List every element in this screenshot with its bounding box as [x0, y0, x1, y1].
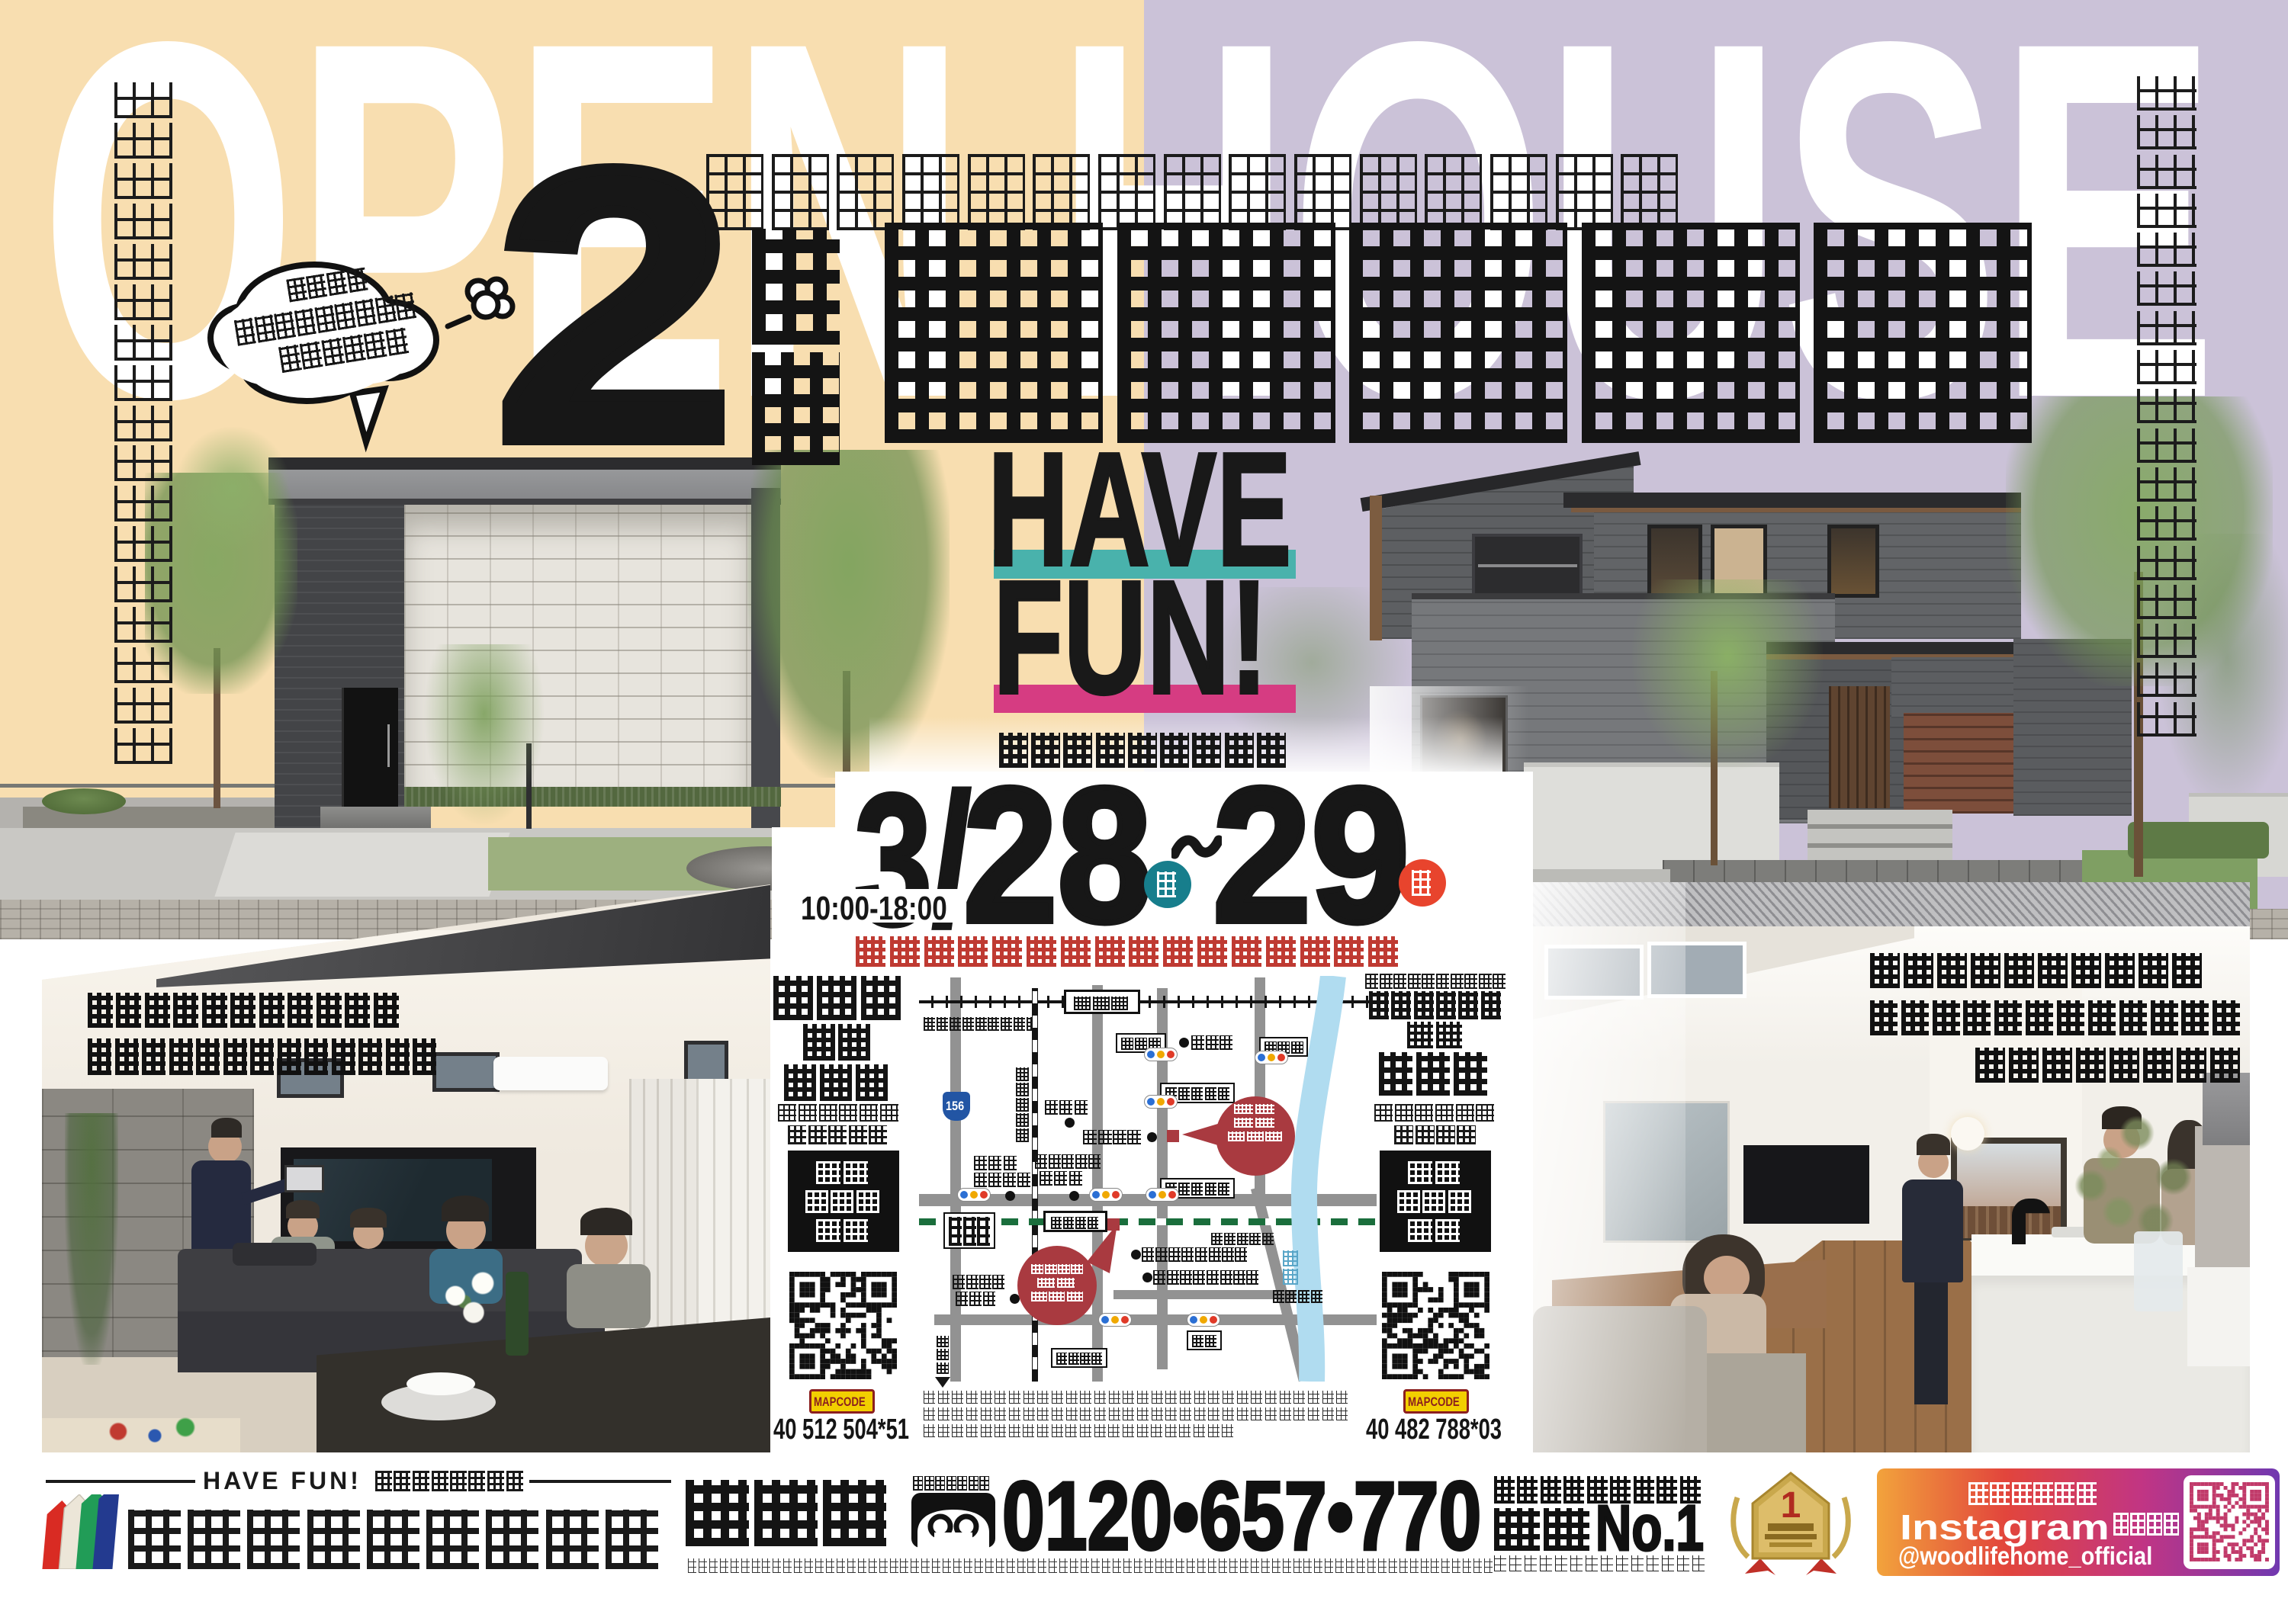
svg-text:1: 1: [1781, 1485, 1801, 1526]
